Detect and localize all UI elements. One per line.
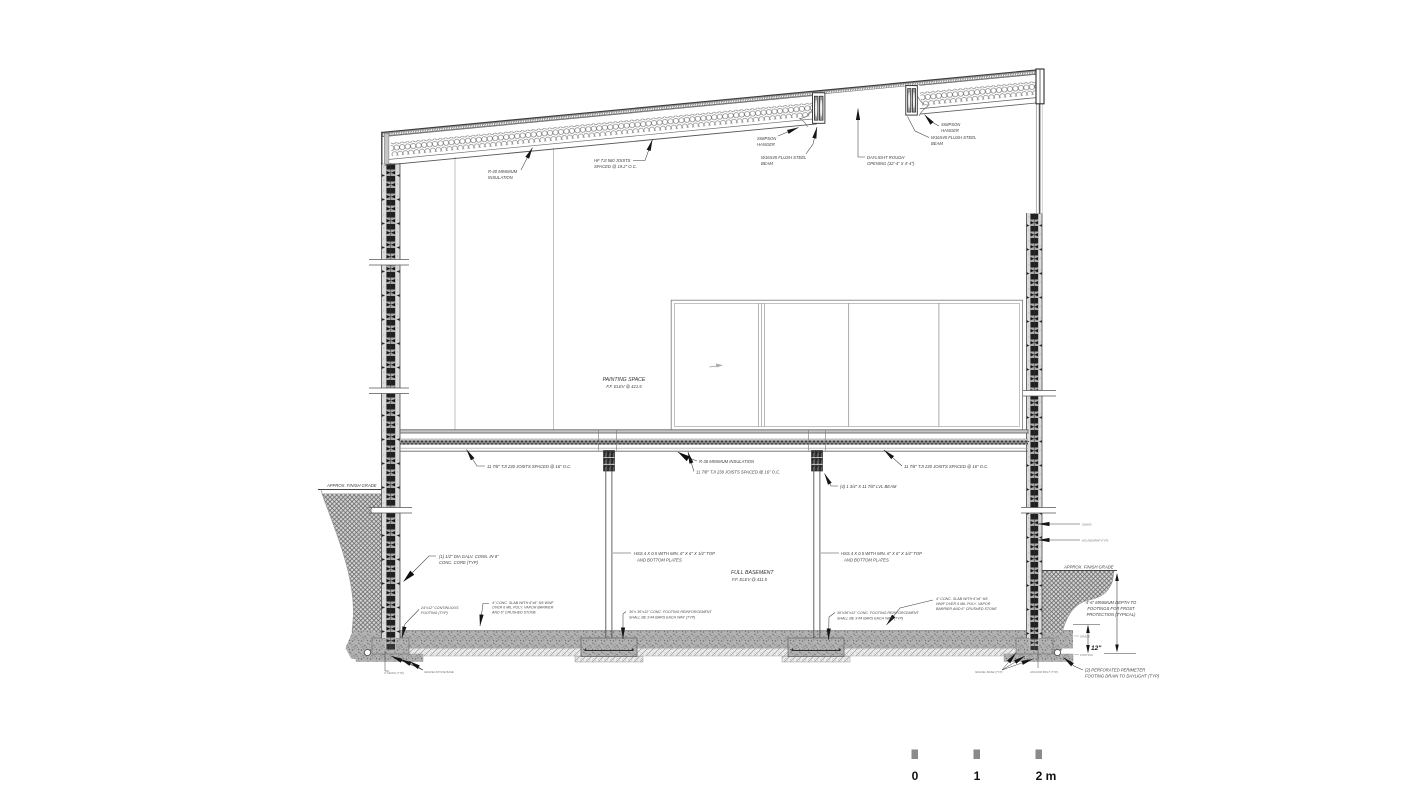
svg-text:HSS 4 X 0.5 WITH MIN. 6" X 6": HSS 4 X 0.5 WITH MIN. 6" X 6" X 1/4" TOP	[841, 551, 922, 556]
svg-text:BARRIER AND 6" CRUSHED STONE: BARRIER AND 6" CRUSHED STONE	[936, 607, 997, 611]
svg-text:(2) PERFORATED PERIMETER: (2) PERFORATED PERIMETER	[1085, 668, 1145, 673]
svg-text:SIDING: SIDING	[1082, 523, 1092, 527]
svg-text:4" DRAIN (TYP): 4" DRAIN (TYP)	[384, 671, 404, 675]
svg-text:INSULATION: INSULATION	[488, 175, 514, 180]
svg-text:CONC. CORE (TYP): CONC. CORE (TYP)	[439, 560, 478, 565]
svg-text:SHALL BE 3-#4 BARS EACH WAY (: SHALL BE 3-#4 BARS EACH WAY (TYP)	[837, 617, 903, 621]
svg-text:11 7/8" TJI 230 JOISTS SPACED: 11 7/8" TJI 230 JOISTS SPACED @ 16" O.C.	[696, 470, 780, 475]
svg-text:24"x12" CONTINUOUS: 24"x12" CONTINUOUS	[420, 606, 459, 610]
svg-text:HOUSEWRAP (TYP): HOUSEWRAP (TYP)	[1082, 539, 1108, 543]
svg-text:HSS 4 X 0.5 WITH MIN. 6" X 6": HSS 4 X 0.5 WITH MIN. 6" X 6" X 1/4" TOP	[634, 551, 715, 556]
svg-text:FOOTING DRAIN TO DAYLIGHT (TYP: FOOTING DRAIN TO DAYLIGHT (TYP)	[1085, 674, 1160, 679]
svg-text:HF TJI 560 JOISTS: HF TJI 560 JOISTS	[594, 158, 631, 163]
svg-text:12": 12"	[1091, 645, 1102, 652]
svg-text:(1) 1/2" DIA GALV. CONN. IN 8": (1) 1/2" DIA GALV. CONN. IN 8"	[439, 554, 499, 559]
svg-text:APPROX. FINISH GRADE: APPROX. FINISH GRADE	[326, 483, 377, 488]
svg-text:W16X45 FLUSH STEEL: W16X45 FLUSH STEEL	[931, 135, 977, 140]
svg-text:4'-6" MINIMUM DEPTH TO: 4'-6" MINIMUM DEPTH TO	[1086, 600, 1137, 605]
svg-text:AND 6" CRUSHED STONE: AND 6" CRUSHED STONE	[491, 610, 537, 614]
svg-text:R-40 MINIMUM: R-40 MINIMUM	[488, 169, 518, 174]
svg-text:BEAM: BEAM	[761, 161, 773, 166]
svg-text:SIMPSON: SIMPSON	[941, 122, 961, 127]
svg-text:11 7/8" TJI 230 JOISTS SPACED: 11 7/8" TJI 230 JOISTS SPACED @ 16" O.C.	[487, 464, 571, 469]
svg-text:11 7/8" TJI 230 JOISTS SPACED: 11 7/8" TJI 230 JOISTS SPACED @ 16" O.C.	[904, 464, 988, 469]
svg-text:R-38 MINIMUM INSULATION: R-38 MINIMUM INSULATION	[699, 459, 755, 464]
svg-text:FOOTINGS FOR FROST: FOOTINGS FOR FROST	[1087, 606, 1135, 611]
svg-text:OVER 6 MIL POLY. VAPOR BARRIER: OVER 6 MIL POLY. VAPOR BARRIER	[492, 606, 554, 610]
svg-text:WWF OVER 6 MIL POLY. VAPOR: WWF OVER 6 MIL POLY. VAPOR	[936, 602, 991, 606]
svg-text:AND BOTTOM PLATES: AND BOTTOM PLATES	[636, 558, 682, 563]
svg-text:AND BOTTOM PLATES: AND BOTTOM PLATES	[843, 558, 889, 563]
svg-text:GRAVEL/STONE BASE: GRAVEL/STONE BASE	[424, 670, 454, 674]
svg-text:FOOTING (TYP): FOOTING (TYP)	[421, 611, 448, 615]
svg-text:APPROX. FINISH GRADE: APPROX. FINISH GRADE	[1063, 565, 1114, 570]
svg-text:OPENING (32'-4" X 4'-4"): OPENING (32'-4" X 4'-4")	[867, 161, 915, 166]
svg-text:(4) 1 3/4" X 11 7/8" LVL BEAM: (4) 1 3/4" X 11 7/8" LVL BEAM	[840, 484, 897, 489]
svg-text:SHALL BE 3-#4 BARS EACH WAY (: SHALL BE 3-#4 BARS EACH WAY (TYP)	[629, 616, 695, 620]
svg-text:HANGER: HANGER	[941, 128, 959, 133]
svg-text:36"x36"x12" CONC. FOOTING REIN: 36"x36"x12" CONC. FOOTING REINFORCEMENT	[837, 611, 920, 615]
svg-text:FULL BASEMENT: FULL BASEMENT	[731, 570, 774, 576]
svg-text:ANCHOR BOLT (TYP): ANCHOR BOLT (TYP)	[1029, 670, 1058, 674]
svg-text:SIMPSON: SIMPSON	[757, 136, 777, 141]
svg-text:4" CONC. SLAB WITH 6"x6" 6/6: 4" CONC. SLAB WITH 6"x6" 6/6	[936, 597, 988, 601]
svg-text:1: 1	[974, 769, 981, 783]
svg-text:W16X45 FLUSH STEEL: W16X45 FLUSH STEEL	[761, 155, 807, 160]
svg-text:HANGER: HANGER	[757, 142, 775, 147]
svg-text:SPACED @ 19.2" O.C.: SPACED @ 19.2" O.C.	[594, 164, 637, 169]
svg-text:4" CONC. SLAB WITH 6"x6" 6/6 W: 4" CONC. SLAB WITH 6"x6" 6/6 WWF	[492, 601, 554, 605]
svg-text:2 m: 2 m	[1036, 769, 1057, 783]
svg-text:FOOTING: FOOTING	[1080, 653, 1094, 657]
svg-text:36"x 36"x12" CONC. FOOTING REI: 36"x 36"x12" CONC. FOOTING REINFORCEMENT	[629, 610, 713, 614]
svg-text:GRAVEL BASE (TYP): GRAVEL BASE (TYP)	[975, 670, 1003, 674]
svg-text:PROTECTION (TYPICAL): PROTECTION (TYPICAL)	[1087, 612, 1136, 617]
svg-text:PAINTING SPACE: PAINTING SPACE	[603, 377, 646, 383]
svg-text:DAYLIGHT ROUGH: DAYLIGHT ROUGH	[867, 155, 905, 160]
svg-text:BEAM: BEAM	[931, 141, 943, 146]
svg-text:0: 0	[912, 769, 919, 783]
svg-text:F.F. ELEV @ 411.5: F.F. ELEV @ 411.5	[732, 577, 768, 582]
svg-text:GRADE: GRADE	[1080, 635, 1090, 639]
svg-text:F.F. ELEV @ 421.5: F.F. ELEV @ 421.5	[606, 384, 642, 389]
